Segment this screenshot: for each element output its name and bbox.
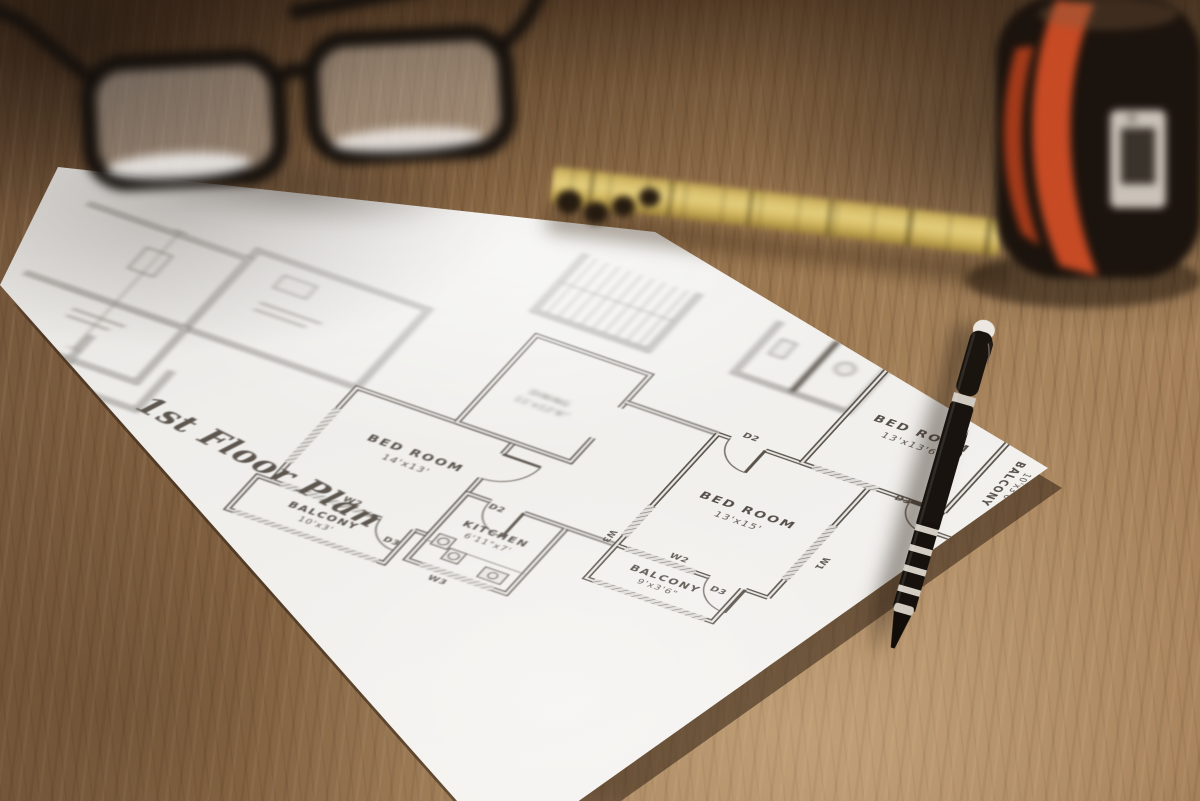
marker-w1: W1 xyxy=(811,556,832,571)
pen-tip xyxy=(884,611,911,651)
left-temple-arm xyxy=(0,3,89,83)
marker-d3: D3 xyxy=(707,585,728,597)
photo-scene: DINING 11'x12'6" BED ROOM 14'x13' xyxy=(0,0,1200,801)
marker-w3: W3 xyxy=(425,574,449,587)
room-dining-walls xyxy=(410,335,743,545)
sink-icon xyxy=(477,567,509,585)
clip-slot xyxy=(1121,128,1155,184)
room-bedroom-center: BED ROOM 13'x15' xyxy=(595,434,870,621)
ruler-hinge xyxy=(639,188,660,207)
tape-measure xyxy=(958,0,1200,308)
bridge xyxy=(277,69,312,83)
ruler-hinge xyxy=(584,202,608,224)
folded-temple-arm xyxy=(295,0,426,12)
door-arc xyxy=(481,454,541,491)
ruler-hinge xyxy=(556,190,582,214)
staircase xyxy=(534,254,700,351)
eyeglasses xyxy=(0,0,590,232)
marker-d2: D2 xyxy=(486,503,507,515)
marker-d2: D2 xyxy=(740,432,761,444)
right-temple-arm xyxy=(502,0,550,43)
clip-screw xyxy=(1127,113,1137,123)
window-hatch xyxy=(288,409,338,463)
window-hatch xyxy=(616,473,834,598)
marker-d3: D3 xyxy=(892,494,913,506)
window-hatch xyxy=(813,467,878,489)
ruler-hinge xyxy=(612,196,635,217)
door-arc xyxy=(710,438,766,472)
